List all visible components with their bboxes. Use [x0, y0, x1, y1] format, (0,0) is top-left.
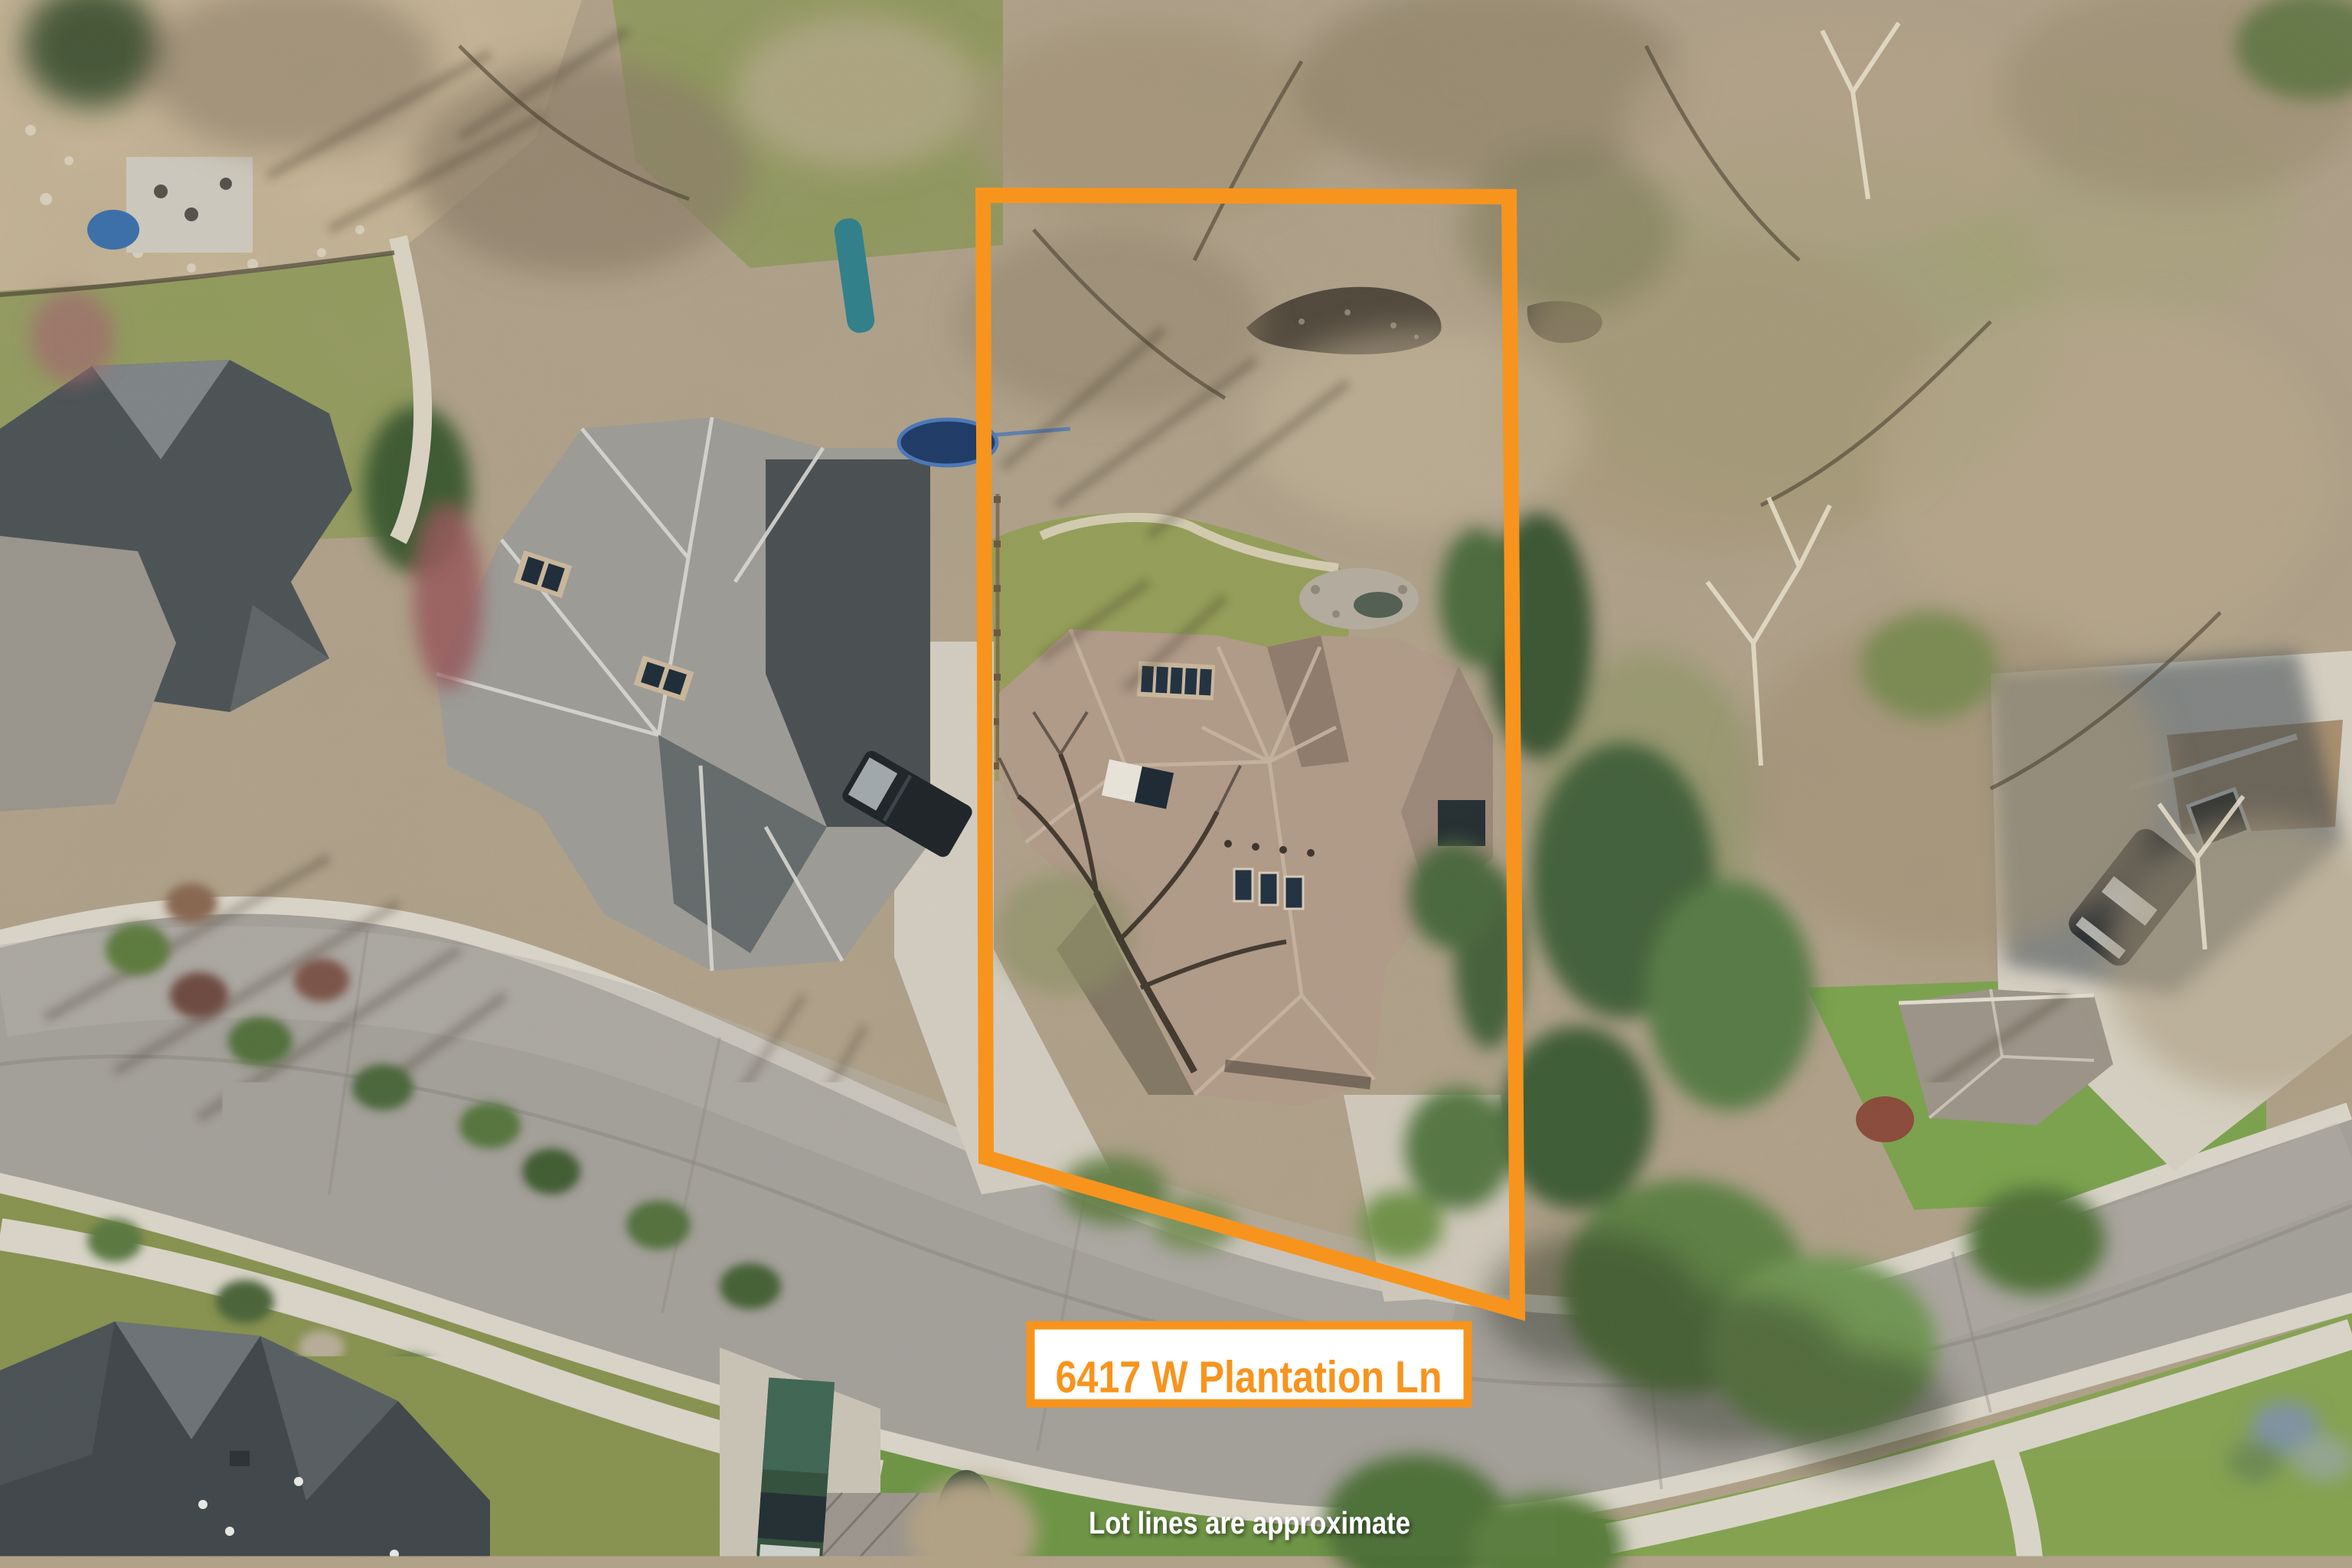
aerial-photo-canvas: 6417 W Plantation Ln Lot lines are appro… [0, 0, 2352, 1568]
aerial-photo: 6417 W Plantation Ln Lot lines are appro… [0, 0, 2352, 1568]
caption-text: Lot lines are approximate [1089, 1505, 1410, 1540]
address-label: 6417 W Plantation Ln [1031, 1325, 1468, 1403]
watermark-mls: MLS [2209, 1499, 2311, 1549]
watermark-intermountain: INTERMOUNTAIN [2178, 1476, 2352, 1499]
address-label-text: 6417 W Plantation Ln [1056, 1352, 1442, 1402]
